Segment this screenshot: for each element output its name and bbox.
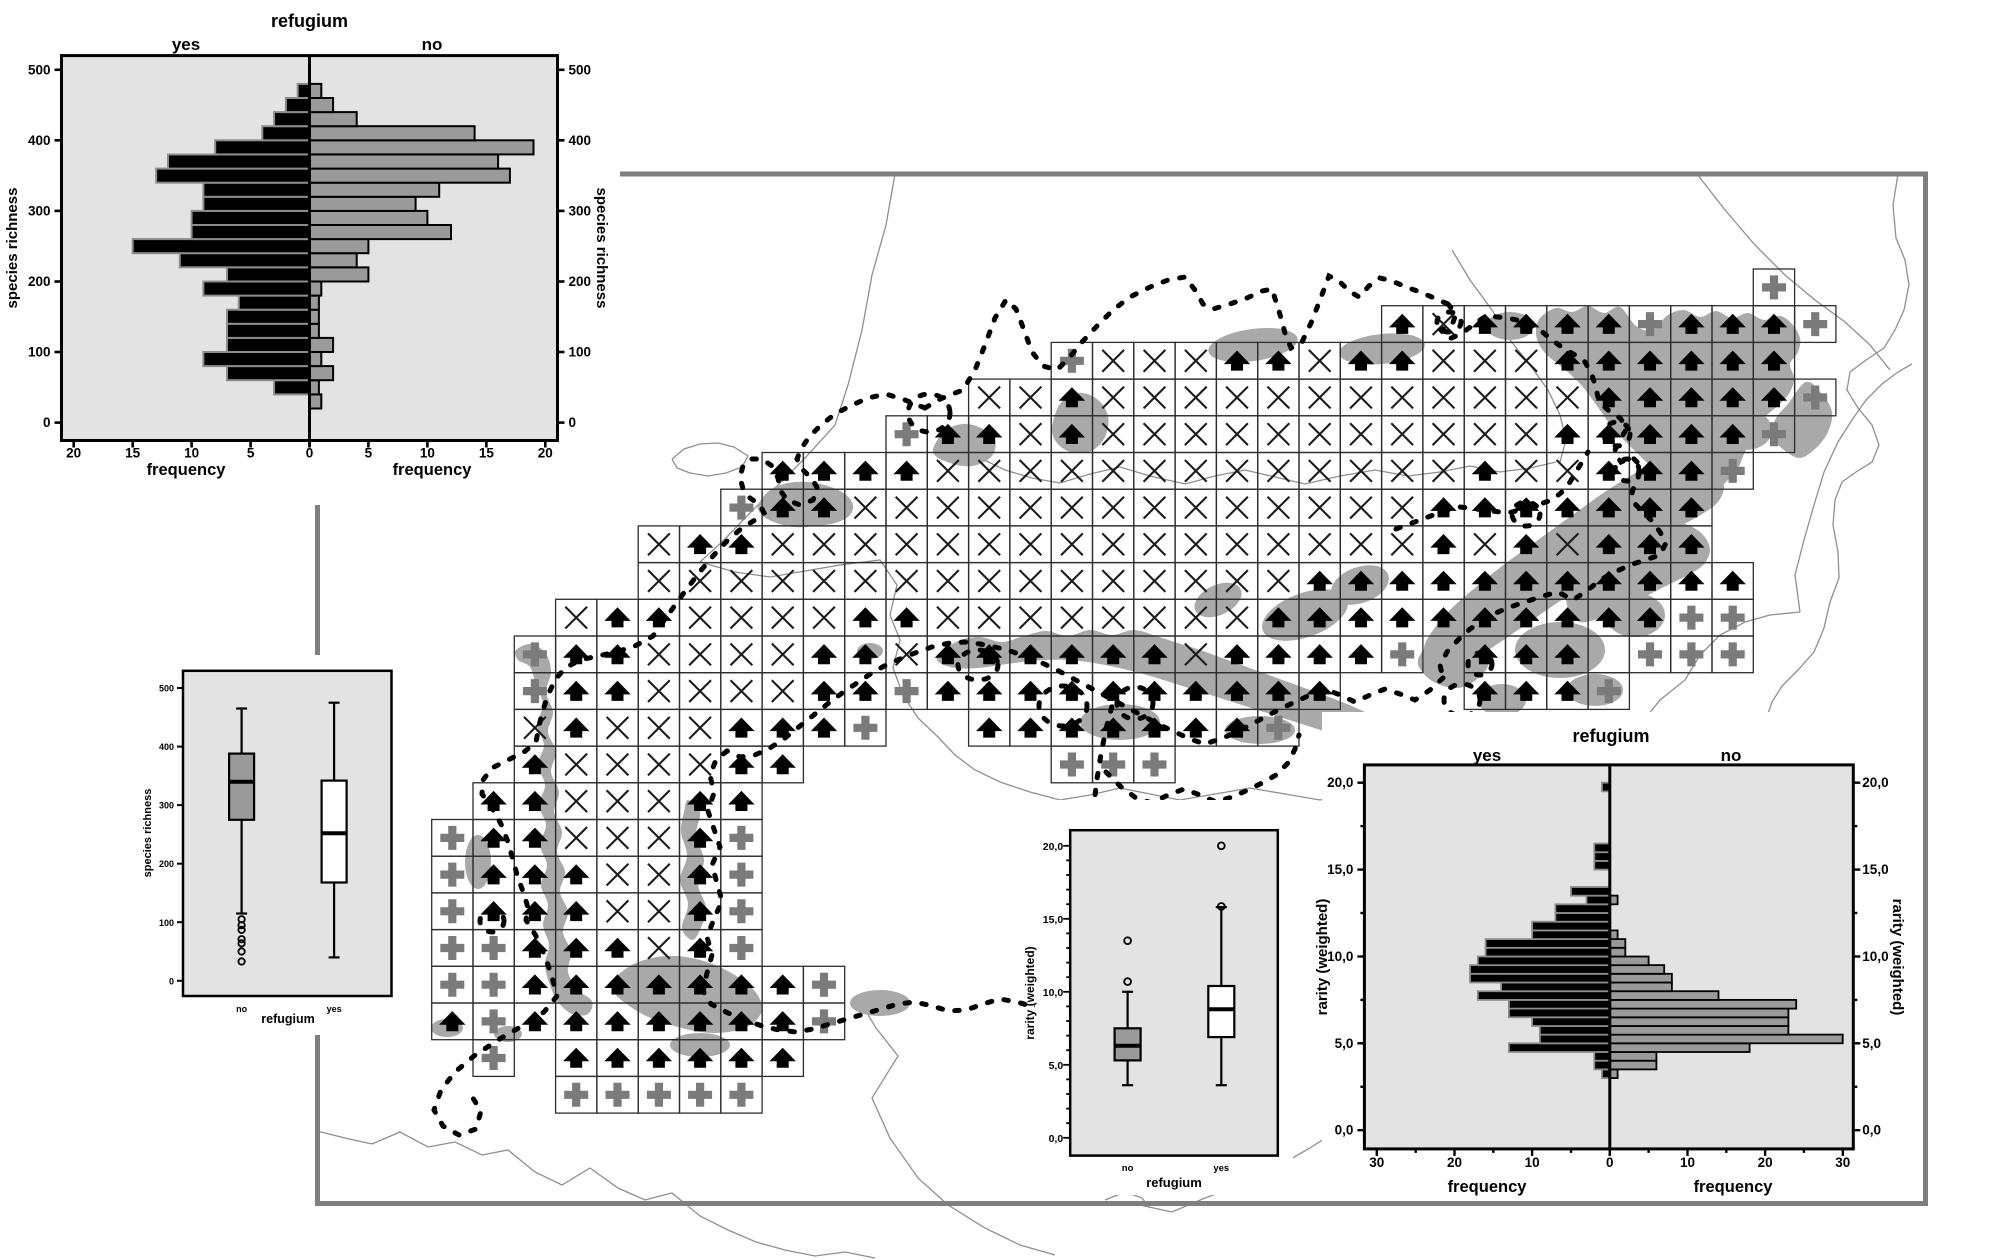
svg-text:20: 20 (538, 446, 553, 461)
svg-text:200: 200 (159, 859, 174, 869)
svg-text:30: 30 (1369, 1155, 1384, 1170)
svg-text:400: 400 (28, 133, 51, 148)
svg-text:500: 500 (569, 62, 592, 77)
svg-text:500: 500 (28, 62, 51, 77)
svg-text:no: no (1721, 746, 1742, 765)
svg-text:5: 5 (247, 446, 255, 461)
svg-text:15,0: 15,0 (1862, 862, 1888, 877)
svg-text:rarity (weighted): rarity (weighted) (1889, 899, 1906, 1016)
svg-text:5,0: 5,0 (1335, 1036, 1354, 1051)
svg-text:100: 100 (569, 345, 592, 360)
svg-text:rarity (weighted): rarity (weighted) (1023, 946, 1037, 1039)
svg-text:0: 0 (43, 415, 51, 430)
svg-text:no: no (422, 35, 443, 54)
svg-text:20,0: 20,0 (1327, 775, 1353, 790)
svg-text:10: 10 (184, 446, 199, 461)
svg-text:20,0: 20,0 (1862, 775, 1888, 790)
svg-text:30: 30 (1835, 1155, 1850, 1170)
svg-text:10: 10 (1525, 1155, 1540, 1170)
svg-text:frequency: frequency (393, 461, 473, 479)
svg-text:rarity (weighted): rarity (weighted) (1314, 899, 1331, 1016)
svg-text:10,0: 10,0 (1862, 949, 1888, 964)
svg-text:10,0: 10,0 (1043, 987, 1064, 999)
svg-text:300: 300 (159, 801, 174, 811)
svg-text:refugium: refugium (1146, 1175, 1202, 1190)
svg-text:no: no (1122, 1163, 1134, 1174)
svg-text:frequency: frequency (147, 461, 227, 479)
svg-text:5,0: 5,0 (1049, 1060, 1064, 1072)
svg-text:400: 400 (159, 742, 174, 752)
svg-text:yes: yes (1473, 746, 1501, 765)
svg-text:20: 20 (66, 446, 81, 461)
svg-text:frequency: frequency (1448, 1178, 1528, 1196)
svg-text:20: 20 (1758, 1155, 1773, 1170)
svg-text:10,0: 10,0 (1327, 949, 1353, 964)
svg-text:0: 0 (569, 415, 577, 430)
svg-text:frequency: frequency (1694, 1178, 1774, 1196)
svg-text:200: 200 (28, 274, 51, 289)
svg-text:0: 0 (306, 446, 314, 461)
svg-text:species richness: species richness (142, 789, 154, 878)
svg-text:10: 10 (420, 446, 435, 461)
svg-text:yes: yes (1213, 1163, 1229, 1174)
svg-text:100: 100 (28, 345, 51, 360)
svg-text:500: 500 (159, 684, 174, 694)
svg-text:300: 300 (569, 203, 592, 218)
svg-text:20,0: 20,0 (1043, 841, 1064, 853)
svg-text:10: 10 (1680, 1155, 1695, 1170)
svg-text:15: 15 (479, 446, 495, 461)
svg-text:0: 0 (1606, 1155, 1614, 1170)
svg-text:0,0: 0,0 (1335, 1123, 1354, 1138)
svg-text:20: 20 (1447, 1155, 1462, 1170)
svg-text:yes: yes (327, 1004, 342, 1014)
svg-text:100: 100 (159, 918, 174, 928)
svg-text:5,0: 5,0 (1862, 1036, 1881, 1051)
svg-text:refugium: refugium (1572, 726, 1649, 746)
svg-text:300: 300 (28, 203, 51, 218)
svg-text:0,0: 0,0 (1049, 1133, 1064, 1145)
svg-text:400: 400 (569, 133, 592, 148)
svg-text:15: 15 (125, 446, 141, 461)
svg-text:species richness: species richness (593, 188, 610, 309)
svg-text:15,0: 15,0 (1327, 862, 1353, 877)
svg-text:yes: yes (172, 35, 200, 54)
svg-text:0,0: 0,0 (1862, 1123, 1881, 1138)
svg-text:5: 5 (365, 446, 373, 461)
svg-text:no: no (236, 1004, 247, 1014)
svg-text:refugium: refugium (271, 11, 348, 31)
svg-text:15,0: 15,0 (1043, 914, 1064, 926)
svg-text:refugium: refugium (261, 1012, 314, 1026)
svg-text:200: 200 (569, 274, 592, 289)
svg-text:0: 0 (169, 976, 174, 986)
svg-text:species richness: species richness (4, 188, 21, 309)
